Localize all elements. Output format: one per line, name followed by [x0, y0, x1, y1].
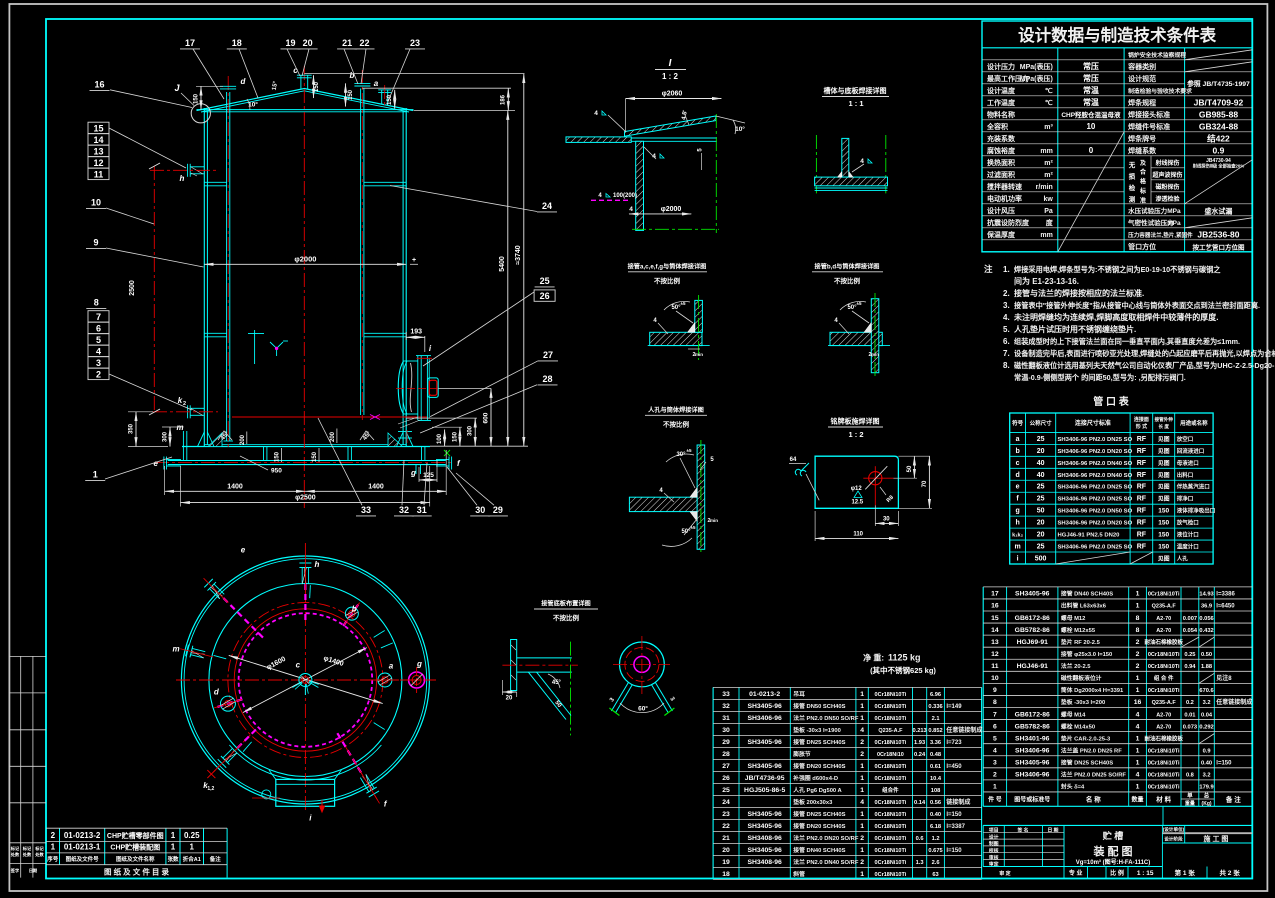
- svg-text:1: 1: [860, 871, 864, 878]
- svg-text:RF: RF: [1137, 508, 1147, 515]
- svg-text:g: g: [410, 469, 416, 478]
- svg-text:数量: 数量: [1132, 796, 1144, 804]
- svg-text:+: +: [412, 257, 416, 264]
- svg-text:5: 5: [96, 335, 101, 345]
- svg-text:l=150: l=150: [1216, 761, 1232, 767]
- svg-text:法兰 PN2.0 DN20 SO/RF: 法兰 PN2.0 DN20 SO/RF: [793, 834, 859, 842]
- svg-text:l=723: l=723: [946, 740, 962, 746]
- svg-text:1: 1: [93, 470, 98, 480]
- svg-text:125: 125: [423, 472, 434, 479]
- svg-text:150: 150: [348, 89, 354, 100]
- svg-text:1: 1: [190, 842, 195, 851]
- svg-text:23: 23: [410, 38, 420, 48]
- svg-text:I: I: [669, 58, 672, 69]
- svg-text:RF: RF: [1137, 460, 1147, 467]
- svg-text:15: 15: [93, 123, 103, 133]
- svg-text:18: 18: [232, 38, 242, 48]
- svg-text:结422: 结422: [1207, 133, 1230, 143]
- svg-text:法兰 PN2.0 DN40 SO/RF: 法兰 PN2.0 DN40 SO/RF: [793, 858, 859, 866]
- svg-text:日期: 日期: [29, 867, 37, 874]
- svg-text:Vg=10m³ (图号:H-FA-111C): Vg=10m³ (图号:H-FA-111C): [1076, 858, 1151, 866]
- svg-text:13: 13: [991, 639, 999, 646]
- svg-text:焊接接头标准: 焊接接头标准: [1128, 110, 1170, 119]
- svg-text:焊条规程: 焊条规程: [1128, 98, 1156, 107]
- svg-text:±5: ±5: [687, 448, 692, 453]
- svg-text:备注: 备注: [209, 855, 222, 863]
- svg-text:(设计单位): (设计单位): [1163, 826, 1185, 833]
- svg-text:人孔垫片试压时用不锈钢缠绕垫片.: 人孔垫片试压时用不锈钢缠绕垫片.: [1014, 324, 1136, 334]
- svg-text:常温-0.9-侧侧型两个 的间距50,型号为:: 常温-0.9-侧侧型两个 的间距50,型号为: ,另配排污阀门.: [1014, 373, 1186, 382]
- svg-text:序号: 序号: [46, 855, 59, 863]
- svg-text:30°: 30°: [676, 452, 686, 458]
- svg-text:2: 2: [993, 772, 997, 779]
- svg-text:GB324-88: GB324-88: [1199, 121, 1238, 131]
- svg-text:0.01: 0.01: [1184, 712, 1195, 718]
- svg-text:排净口: 排净口: [1177, 495, 1194, 503]
- svg-text:150: 150: [314, 81, 320, 92]
- svg-text:磁性翻板液位计选用基列夫天然气公司自动化仪表厂产品,型号为U: 磁性翻板液位计选用基列夫天然气公司自动化仪表厂产品,型号为UHC-Z-2.5-D…: [1013, 361, 1275, 370]
- svg-text:0.073: 0.073: [1183, 724, 1197, 730]
- svg-text:比 例: 比 例: [1110, 869, 1124, 877]
- svg-text:r/min: r/min: [1036, 184, 1053, 191]
- svg-text:64: 64: [790, 457, 797, 463]
- svg-text:0Cr18Ni10Ti: 0Cr18Ni10Ti: [875, 812, 907, 818]
- svg-text:19: 19: [722, 859, 730, 866]
- svg-text:0.61: 0.61: [930, 764, 941, 770]
- svg-text:29: 29: [493, 505, 503, 515]
- svg-text:6: 6: [96, 323, 101, 333]
- svg-text:150: 150: [1158, 532, 1169, 539]
- svg-text:30: 30: [722, 727, 730, 734]
- svg-text:接管 DN25 SCH40S: 接管 DN25 SCH40S: [793, 810, 845, 818]
- svg-text:过滤面积: 过滤面积: [987, 170, 1015, 179]
- svg-text:项目: 项目: [989, 827, 999, 834]
- svg-text:1.2: 1.2: [932, 836, 940, 842]
- svg-text:0.56: 0.56: [930, 800, 941, 806]
- svg-text:渗透检验: 渗透检验: [1155, 195, 1179, 203]
- svg-text:净 重:: 净 重:: [863, 653, 884, 663]
- svg-text:2: 2: [51, 831, 56, 840]
- svg-text:108: 108: [931, 788, 941, 794]
- svg-text:出料口: 出料口: [1177, 471, 1194, 479]
- svg-text:SH3405-96: SH3405-96: [1015, 591, 1050, 598]
- svg-text:2: 2: [1136, 639, 1140, 646]
- svg-text:见图: 见图: [1158, 495, 1170, 503]
- svg-text:材 料: 材 料: [1155, 795, 1171, 804]
- svg-text:0.9: 0.9: [1203, 748, 1211, 754]
- svg-text:500: 500: [1035, 556, 1047, 563]
- svg-text:RF: RF: [1137, 520, 1147, 527]
- svg-text:2: 2: [860, 859, 864, 866]
- svg-text:不按比例: 不按比例: [834, 276, 861, 285]
- svg-text:SH3406-96 PN2.0 DN40 SO: SH3406-96 PN2.0 DN40 SO: [1058, 473, 1133, 479]
- svg-text:SH3405-96: SH3405-96: [747, 823, 782, 830]
- svg-text:见注8: 见注8: [1216, 674, 1232, 682]
- svg-text:制图: 制图: [989, 840, 999, 847]
- svg-text:1: 1: [1136, 784, 1140, 791]
- svg-text:26: 26: [540, 291, 550, 301]
- svg-text:JB/T4709-92: JB/T4709-92: [1194, 97, 1244, 107]
- svg-text:14.93: 14.93: [1199, 592, 1213, 598]
- svg-text:补强圈 d600x4-D: 补强圈 d600x4-D: [792, 774, 838, 782]
- svg-text:保温厚度: 保温厚度: [986, 230, 1016, 239]
- svg-text:℃: ℃: [1045, 99, 1053, 107]
- svg-text:7.: 7.: [1003, 349, 1010, 358]
- svg-text:搅拌器转速: 搅拌器转速: [987, 182, 1022, 191]
- svg-text:CHP贮槽装配图: CHP贮槽装配图: [110, 842, 160, 851]
- svg-text:1: 1: [1136, 675, 1140, 682]
- svg-text:MPa(表压): MPa(表压): [1020, 62, 1053, 71]
- svg-text:0.432: 0.432: [1199, 628, 1213, 634]
- svg-text:耐油石棉橡胶板: 耐油石棉橡胶板: [1144, 638, 1183, 646]
- svg-text:h: h: [315, 560, 320, 569]
- svg-text:8.: 8.: [1003, 361, 1010, 370]
- svg-text:焊缝系数: 焊缝系数: [1128, 146, 1157, 155]
- svg-text:100: 100: [437, 433, 443, 444]
- svg-text:1: 1: [1136, 591, 1140, 598]
- svg-text:27: 27: [543, 350, 553, 360]
- svg-text:1 : 2: 1 : 2: [848, 430, 863, 439]
- svg-text:工作温度: 工作温度: [987, 98, 1016, 107]
- svg-text:符号: 符号: [1012, 419, 1024, 427]
- svg-text:mm: mm: [1040, 148, 1052, 155]
- svg-text:母液进口: 母液进口: [1177, 459, 1199, 467]
- svg-text:2: 2: [860, 751, 864, 758]
- svg-text:36.9: 36.9: [1201, 604, 1212, 610]
- svg-text:膨胀节: 膨胀节: [792, 750, 811, 758]
- svg-text:25: 25: [1037, 544, 1045, 551]
- svg-text:共 2 张: 共 2 张: [1219, 868, 1240, 877]
- svg-text:1: 1: [860, 787, 864, 794]
- svg-text:3.2: 3.2: [1203, 700, 1211, 706]
- svg-text:水压试验压力: 水压试验压力: [1128, 206, 1168, 215]
- svg-text:处数: 处数: [22, 851, 32, 858]
- svg-text:无: 无: [1128, 161, 1136, 169]
- svg-text:链接制成: 链接制成: [946, 798, 970, 806]
- svg-text:0Cr18Ni10Ti: 0Cr18Ni10Ti: [1148, 748, 1180, 754]
- svg-text:常压: 常压: [1083, 73, 1099, 83]
- svg-text:01-0213-2: 01-0213-2: [749, 691, 780, 698]
- svg-text:0Cr18Ni10Ti: 0Cr18Ni10Ti: [1148, 688, 1180, 694]
- svg-text:MPa: MPa: [1167, 208, 1181, 215]
- svg-text:g: g: [1015, 508, 1019, 515]
- svg-text:3: 3: [993, 760, 997, 767]
- svg-text:25: 25: [722, 787, 730, 794]
- svg-text:min: min: [871, 352, 879, 357]
- svg-text:28: 28: [542, 374, 552, 384]
- svg-text:l=450: l=450: [946, 764, 962, 770]
- svg-text:0: 0: [1089, 146, 1094, 155]
- svg-text:0.40: 0.40: [1201, 761, 1212, 767]
- svg-text:组装成型时的上下接管法兰面在同一垂直平面内,其垂直度允差为≤: 组装成型时的上下接管法兰面在同一垂直平面内,其垂直度允差为≤1mm.: [1014, 337, 1240, 346]
- svg-text:容器类别: 容器类别: [1127, 62, 1156, 71]
- svg-text:12.5: 12.5: [851, 500, 863, 506]
- svg-text:150: 150: [1158, 544, 1169, 551]
- svg-text:0.675: 0.675: [928, 848, 942, 854]
- svg-text:0Cr18Ni10Ti: 0Cr18Ni10Ti: [875, 716, 907, 722]
- svg-text:RF: RF: [1137, 436, 1147, 443]
- svg-text:186: 186: [501, 94, 507, 105]
- svg-text:m³: m³: [1044, 124, 1053, 131]
- svg-text:SH3406-96 PN2.0 DN25 SO: SH3406-96 PN2.0 DN25 SO: [1058, 497, 1133, 503]
- svg-text:22: 22: [722, 823, 730, 830]
- svg-text:1: 1: [1136, 747, 1140, 754]
- svg-text:全容积: 全容积: [986, 122, 1008, 131]
- svg-text:0.24: 0.24: [914, 752, 926, 758]
- svg-text:设计温度: 设计温度: [987, 86, 1016, 95]
- svg-text:2: 2: [96, 369, 101, 379]
- svg-text:连接尺寸标准: 连接尺寸标准: [1075, 419, 1111, 427]
- svg-text:螺栓 M12x55: 螺栓 M12x55: [1061, 626, 1096, 634]
- svg-text:焊缝件号标准: 焊缝件号标准: [1128, 122, 1170, 131]
- svg-text:5.: 5.: [1003, 325, 1010, 334]
- svg-text:SH3406-96: SH3406-96: [1015, 772, 1050, 779]
- svg-text:01-0213-1: 01-0213-1: [64, 842, 101, 851]
- svg-text:RF: RF: [1137, 544, 1147, 551]
- svg-text:封头 δ=4: 封头 δ=4: [1061, 783, 1085, 791]
- svg-text:193: 193: [410, 329, 422, 336]
- svg-text:设计压力: 设计压力: [987, 62, 1015, 71]
- svg-text:伴热蒸汽进口: 伴热蒸汽进口: [1176, 483, 1210, 491]
- svg-text:抗震设防烈度: 抗震设防烈度: [987, 218, 1030, 227]
- svg-text:16: 16: [94, 80, 104, 90]
- svg-text:垫板 -30x3 l=1900: 垫板 -30x3 l=1900: [793, 726, 841, 734]
- svg-text:SH3405-96: SH3405-96: [1015, 760, 1050, 767]
- svg-text:25: 25: [1037, 496, 1045, 503]
- svg-text:±5: ±5: [681, 301, 686, 306]
- svg-text:度: 度: [1046, 218, 1054, 227]
- svg-text:2.1: 2.1: [932, 716, 940, 722]
- svg-text:SH3406-96 PN2.0 DN20 SO: SH3406-96 PN2.0 DN20 SO: [1058, 521, 1133, 527]
- svg-text:SH3406-96 PN2.0 DN50 SO: SH3406-96 PN2.0 DN50 SO: [1058, 509, 1133, 515]
- svg-text:Q235-A.F: Q235-A.F: [1152, 700, 1177, 706]
- svg-text:制造检验与验收技术要求: 制造检验与验收技术要求: [1128, 87, 1192, 95]
- svg-text:200: 200: [330, 431, 336, 442]
- svg-text:8: 8: [1136, 627, 1140, 634]
- svg-text:0Cr18Ni10Ti: 0Cr18Ni10Ti: [1148, 652, 1180, 658]
- svg-text:1: 1: [860, 703, 864, 710]
- svg-text:15: 15: [991, 615, 999, 622]
- svg-text:Q235-A.F: Q235-A.F: [1152, 604, 1177, 610]
- svg-text:任意链接制成: 任意链接制成: [945, 726, 982, 734]
- svg-text:70: 70: [922, 480, 928, 487]
- svg-text:1: 1: [860, 763, 864, 770]
- svg-text:32: 32: [399, 505, 409, 515]
- svg-text:2.: 2.: [1003, 289, 1010, 298]
- svg-text:950: 950: [271, 467, 282, 474]
- svg-text:处数: 处数: [10, 851, 20, 858]
- svg-text:压力容器法兰,垫片,紧固件: 压力容器法兰,垫片,紧固件: [1128, 231, 1193, 239]
- svg-text:4: 4: [1136, 723, 1140, 730]
- svg-text:图纸及文件号: 图纸及文件号: [66, 855, 100, 863]
- svg-text:常温: 常温: [1083, 85, 1099, 95]
- svg-text:电动机功率: 电动机功率: [987, 194, 1022, 203]
- svg-text:RF: RF: [1137, 532, 1147, 539]
- svg-text:接管 φ25x3.0 l=150: 接管 φ25x3.0 l=150: [1061, 650, 1112, 658]
- svg-text:见图: 见图: [1158, 459, 1170, 467]
- svg-text:45°: 45°: [552, 680, 562, 686]
- svg-text:1.: 1.: [1003, 265, 1010, 274]
- svg-text:0Cr18Ni10Ti: 0Cr18Ni10Ti: [875, 776, 907, 782]
- svg-text:人孔: 人孔: [1177, 555, 1189, 563]
- svg-text:Pa: Pa: [1044, 208, 1053, 215]
- svg-text:接管底板布置详图: 接管底板布置详图: [541, 600, 591, 608]
- svg-text:准: 准: [1140, 196, 1146, 204]
- svg-text:接管b,d与筒体焊接详图: 接管b,d与筒体焊接详图: [815, 263, 880, 271]
- svg-text:0Cr18Ni10Ti: 0Cr18Ni10Ti: [875, 860, 907, 866]
- svg-text:焊接采用电焊,焊条型号为:不锈钢之间为E0-19-10不锈钢: 焊接采用电焊,焊条型号为:不锈钢之间为E0-19-10不锈钢与碳钢之: [1014, 265, 1221, 274]
- svg-text:标记: 标记: [10, 845, 20, 852]
- svg-text:350: 350: [129, 423, 135, 434]
- svg-text:见图: 见图: [1158, 435, 1170, 443]
- svg-text:0.6: 0.6: [916, 836, 924, 842]
- svg-text:0.25: 0.25: [184, 831, 200, 840]
- svg-text:GB985-88: GB985-88: [1199, 109, 1238, 119]
- svg-text:14: 14: [991, 627, 999, 634]
- svg-text:及: 及: [1140, 159, 1146, 167]
- svg-text:1: 1: [1136, 687, 1140, 694]
- svg-text:24: 24: [722, 799, 730, 806]
- svg-text:SH3406-96: SH3406-96: [747, 715, 782, 722]
- svg-text:1: 1: [51, 842, 56, 851]
- svg-text:0Cr18Ni10Ti: 0Cr18Ni10Ti: [875, 836, 907, 842]
- svg-text:22: 22: [359, 38, 369, 48]
- svg-text:标记: 标记: [22, 845, 32, 852]
- svg-text:施 工 图: 施 工 图: [1204, 834, 1229, 843]
- svg-text:a: a: [1016, 436, 1020, 443]
- svg-text:01-0213-2: 01-0213-2: [64, 831, 101, 840]
- svg-text:20: 20: [1037, 520, 1045, 527]
- svg-text:1 : 15: 1 : 15: [1137, 870, 1154, 877]
- svg-text:设计: 设计: [989, 833, 999, 840]
- svg-text:m²: m²: [1044, 172, 1053, 179]
- svg-text:40: 40: [1037, 460, 1045, 467]
- svg-text:4: 4: [860, 799, 864, 806]
- svg-text:SH3405-96: SH3405-96: [747, 703, 782, 710]
- svg-text:间为 E1-23-13-16.: 间为 E1-23-13-16.: [1014, 276, 1079, 286]
- svg-text:3.: 3.: [1003, 301, 1010, 310]
- svg-text:27: 27: [722, 763, 730, 770]
- svg-text:150: 150: [452, 431, 458, 442]
- svg-text:GB5782-86: GB5782-86: [1015, 723, 1050, 730]
- svg-text:超声波探伤: 超声波探伤: [1151, 171, 1182, 179]
- svg-text:回流液进口: 回流液进口: [1177, 447, 1205, 455]
- svg-text:螺栓 M14x50: 螺栓 M14x50: [1061, 722, 1095, 730]
- svg-text:公称尺寸: 公称尺寸: [1030, 419, 1053, 427]
- svg-text:处数: 处数: [34, 851, 44, 858]
- svg-text:1: 1: [860, 811, 864, 818]
- svg-text:φ2500: φ2500: [295, 495, 316, 502]
- svg-text:2: 2: [860, 739, 864, 746]
- svg-text:21: 21: [342, 38, 352, 48]
- svg-text:g: g: [416, 660, 422, 669]
- svg-text:A2-70: A2-70: [1156, 724, 1171, 730]
- svg-text:0.94: 0.94: [1184, 664, 1196, 670]
- svg-text:±5: ±5: [857, 301, 862, 306]
- svg-text:接管 DN25 SCH40S: 接管 DN25 SCH40S: [1061, 759, 1113, 767]
- svg-text:接管a,c,e,f,g与筒体焊接详图: 接管a,c,e,f,g与筒体焊接详图: [628, 263, 707, 271]
- svg-text:m: m: [176, 423, 183, 432]
- svg-text:名 称: 名 称: [1086, 795, 1101, 804]
- svg-text:长 度: 长 度: [1158, 423, 1169, 430]
- svg-text:液位计口: 液位计口: [1177, 531, 1199, 539]
- svg-text:e: e: [241, 546, 246, 555]
- svg-text:φ2060: φ2060: [662, 91, 683, 98]
- svg-text:焊条牌号: 焊条牌号: [1128, 134, 1156, 143]
- svg-text:设计规范: 设计规范: [1128, 74, 1156, 83]
- svg-text:10.4: 10.4: [930, 776, 942, 782]
- svg-text:h: h: [180, 174, 185, 183]
- svg-text:RF: RF: [1137, 448, 1147, 455]
- svg-text:合: 合: [1140, 168, 1147, 176]
- svg-text:d: d: [1015, 472, 1019, 479]
- svg-text:200: 200: [240, 434, 246, 445]
- svg-text:l=149: l=149: [946, 704, 962, 710]
- svg-text:SH3408-96: SH3408-96: [747, 859, 782, 866]
- svg-text:1 : 1: 1 : 1: [848, 99, 863, 108]
- svg-text:23: 23: [722, 811, 730, 818]
- svg-text:充装系数: 充装系数: [987, 134, 1016, 143]
- svg-text:检: 检: [1129, 183, 1136, 192]
- svg-text:SH3406-96 PN2.0 DN40 SO: SH3406-96 PN2.0 DN40 SO: [1058, 461, 1133, 467]
- svg-text:2: 2: [860, 835, 864, 842]
- svg-text:HGJ46-91 PN2.5 DN20: HGJ46-91 PN2.5 DN20: [1058, 533, 1121, 539]
- svg-text:审 定: 审 定: [999, 870, 1010, 877]
- svg-text:4: 4: [993, 747, 997, 754]
- svg-text:1: 1: [171, 842, 176, 851]
- svg-text:不按比例: 不按比例: [663, 420, 690, 429]
- svg-text:常温: 常温: [1083, 97, 1099, 107]
- svg-text:MPa: MPa: [1167, 220, 1181, 227]
- svg-text:19: 19: [285, 38, 295, 48]
- svg-text:损: 损: [1129, 171, 1136, 180]
- svg-text:2500: 2500: [129, 280, 136, 296]
- svg-text:63: 63: [932, 872, 938, 878]
- svg-text:图纸及文件名称: 图纸及文件名称: [116, 855, 155, 863]
- svg-text:≈3740: ≈3740: [515, 245, 522, 265]
- svg-text:7: 7: [96, 312, 101, 322]
- svg-text:设备制造完毕后,表面进行喷砂亚光处理,焊缝处的凸起应磨平后再: 设备制造完毕后,表面进行喷砂亚光处理,焊缝处的凸起应磨平后再抛光,以焊点为合格.: [1014, 349, 1275, 358]
- svg-text:150: 150: [312, 451, 318, 462]
- svg-text:30: 30: [883, 517, 890, 523]
- svg-text:7: 7: [993, 711, 997, 718]
- svg-text:20: 20: [506, 696, 513, 702]
- svg-text:16: 16: [1134, 699, 1142, 706]
- svg-text:1: 1: [1136, 760, 1140, 767]
- svg-text:c: c: [296, 661, 301, 670]
- svg-text:20: 20: [303, 38, 313, 48]
- svg-text:b: b: [1015, 448, 1019, 455]
- svg-text:2: 2: [1136, 663, 1140, 670]
- svg-text:min: min: [710, 518, 718, 523]
- svg-text:60°: 60°: [638, 705, 648, 713]
- svg-text:磁性翻板液位计: 磁性翻板液位计: [1061, 674, 1102, 682]
- svg-text:0Cr18Ni10Ti: 0Cr18Ni10Ti: [875, 872, 907, 878]
- svg-text:0.292: 0.292: [1199, 724, 1213, 730]
- svg-text:1125 kg: 1125 kg: [888, 653, 921, 663]
- svg-text:签 名: 签 名: [1017, 827, 1029, 834]
- svg-text:换热面积: 换热面积: [987, 158, 1015, 167]
- svg-text:盛水试漏: 盛水试漏: [1204, 206, 1232, 215]
- svg-text:m: m: [1014, 544, 1020, 551]
- svg-text:总: 总: [1204, 792, 1210, 800]
- svg-text:0Cr18Ni10: 0Cr18Ni10: [877, 752, 904, 758]
- svg-text:150: 150: [1158, 508, 1169, 515]
- svg-text:600: 600: [483, 412, 490, 423]
- svg-text:GB6172-86: GB6172-86: [1015, 615, 1050, 622]
- svg-text:管 口 表: 管 口 表: [1093, 395, 1130, 408]
- svg-text:接管 DN20 SCH40S: 接管 DN20 SCH40S: [793, 822, 845, 830]
